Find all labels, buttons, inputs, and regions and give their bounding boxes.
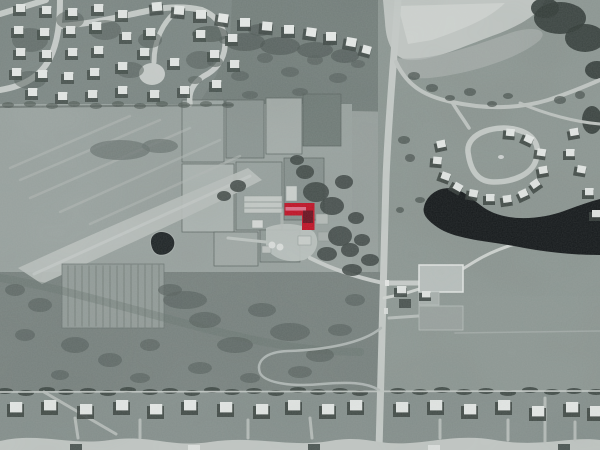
film-grain-overlay <box>0 0 600 450</box>
aerial-photo: Grayscale aerial photograph of a semi-ru… <box>0 0 600 450</box>
aerial-photo-canvas <box>0 0 600 450</box>
